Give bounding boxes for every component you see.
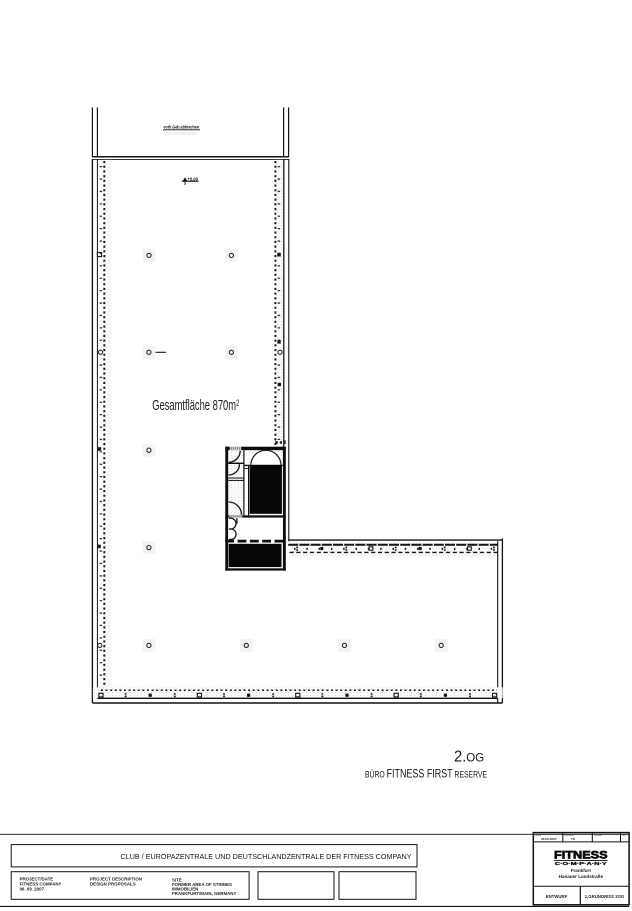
svg-text:ENTWURF: ENTWURF: [546, 894, 568, 899]
svg-text:vorh.Geb.abbrechen: vorh.Geb.abbrechen: [165, 131, 197, 136]
svg-text:FRANKFURT/MAIN, GERMANY: FRANKFURT/MAIN, GERMANY: [172, 891, 236, 896]
svg-text:Hanauer Landstraße: Hanauer Landstraße: [559, 874, 604, 879]
svg-text:vorh.Geb.abbrechen: vorh.Geb.abbrechen: [164, 125, 200, 130]
svg-text:06.09.2007: 06.09.2007: [541, 837, 557, 841]
svg-text:FITNESS: FITNESS: [554, 850, 608, 862]
svg-text:TG: TG: [571, 837, 576, 841]
svg-text:CLUB / EUROPAZENTRALE UND DEUT: CLUB / EUROPAZENTRALE UND DEUTSCHLANDZEN…: [121, 852, 412, 861]
svg-text:Gesamtfläche 870m2: Gesamtfläche 870m2: [152, 397, 239, 414]
svg-text:+0.00: +0.00: [188, 176, 199, 181]
svg-text:BÜRO FITNESS FIRST RESERVE: BÜRO FITNESS FIRST RESERVE: [365, 766, 487, 780]
svg-text:Frankfurt: Frankfurt: [571, 868, 592, 873]
svg-text:06_09_2007: 06_09_2007: [20, 886, 45, 891]
svg-text:DESIGN PROPOSALS: DESIGN PROPOSALS: [90, 881, 136, 886]
svg-text:1,GRUNDRISS 2OG: 1,GRUNDRISS 2OG: [585, 894, 625, 899]
svg-text:SCALE: SCALE: [594, 834, 602, 837]
svg-text:C·O·M·P·A·N·Y: C·O·M·P·A·N·Y: [555, 861, 607, 866]
svg-text:2.OG: 2.OG: [454, 749, 484, 766]
svg-text:NO: NO: [622, 834, 626, 837]
